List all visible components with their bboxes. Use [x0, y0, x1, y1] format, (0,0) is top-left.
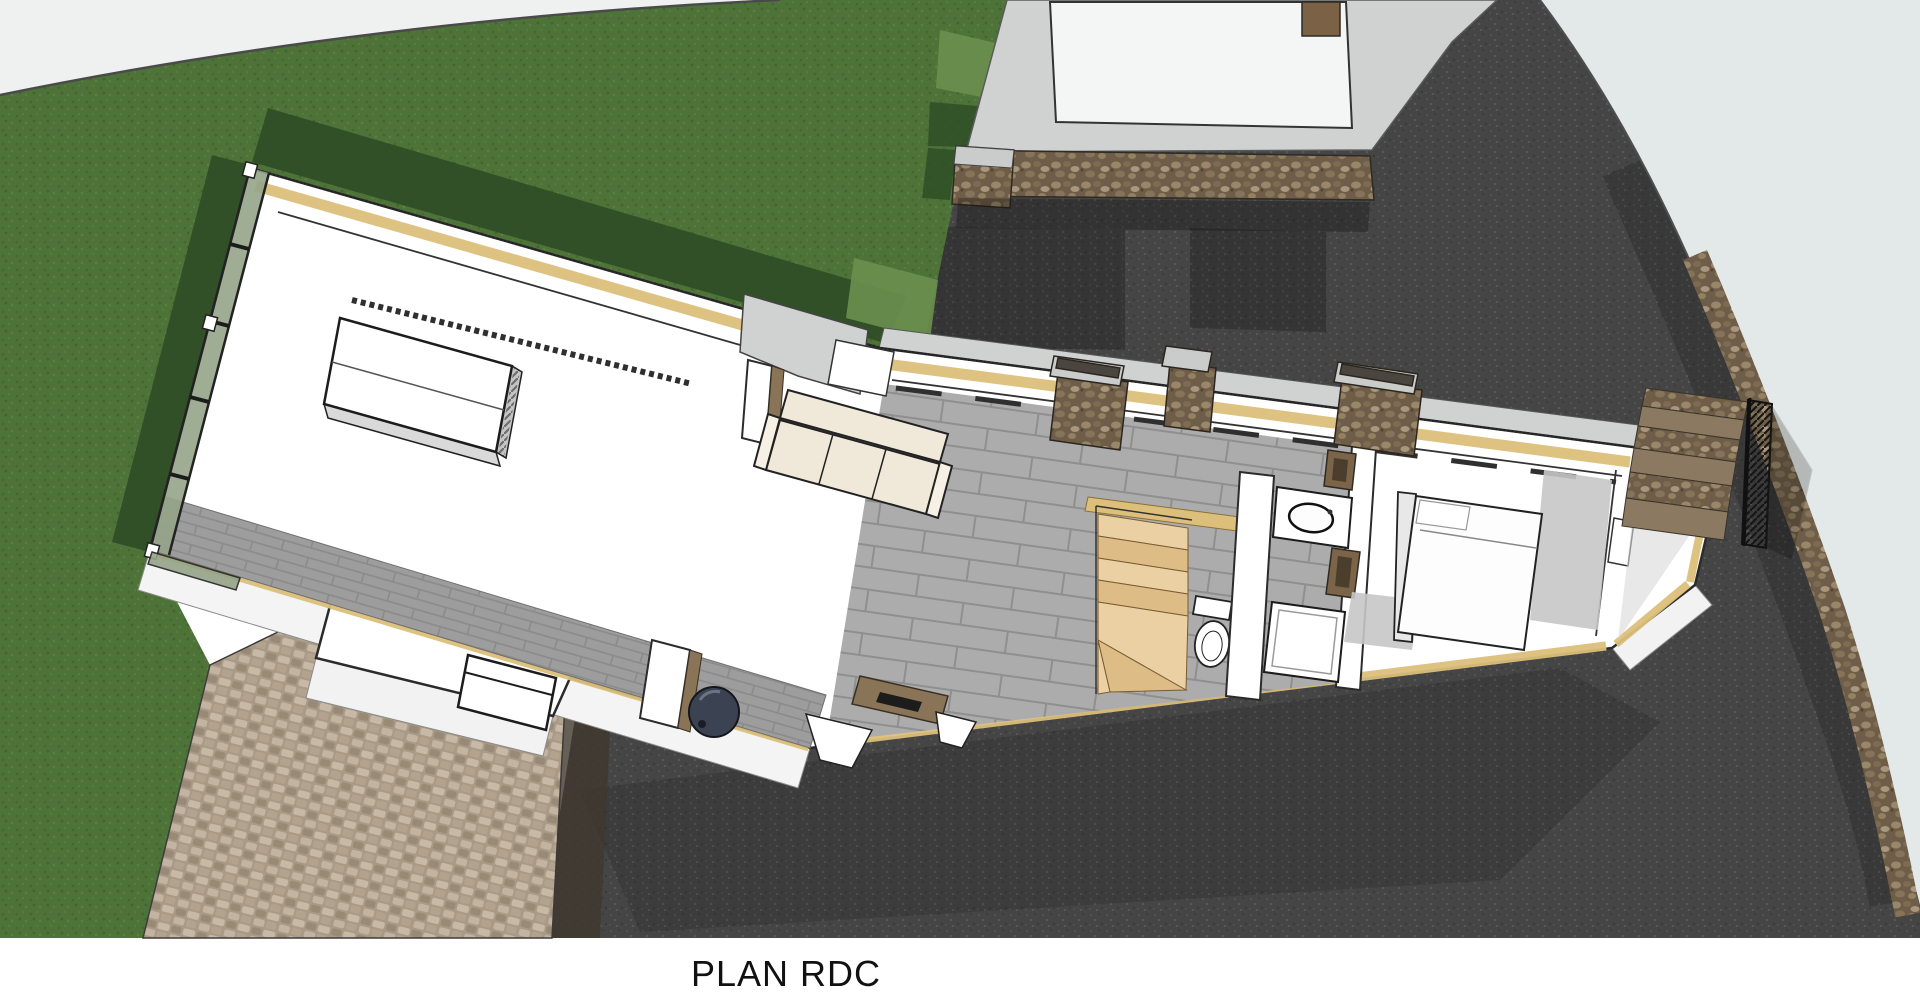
shower — [1264, 602, 1345, 682]
plan-caption: PLAN RDC — [0, 944, 1572, 1004]
garage-door — [1302, 2, 1340, 36]
lawn-shadow-garage — [922, 148, 956, 200]
stone-wall-shadow — [956, 198, 1370, 232]
site-plan-canvas — [0, 0, 1920, 1004]
bedroom-floor-shadow — [1530, 470, 1612, 630]
stone-garden-wall — [954, 150, 1374, 200]
stone-pier-cap — [954, 146, 1014, 168]
plan-caption-text: PLAN RDC — [691, 953, 881, 995]
driveway-shadow-patch — [1190, 228, 1326, 332]
plan-rdc-render: PLAN RDC — [0, 0, 1920, 1004]
